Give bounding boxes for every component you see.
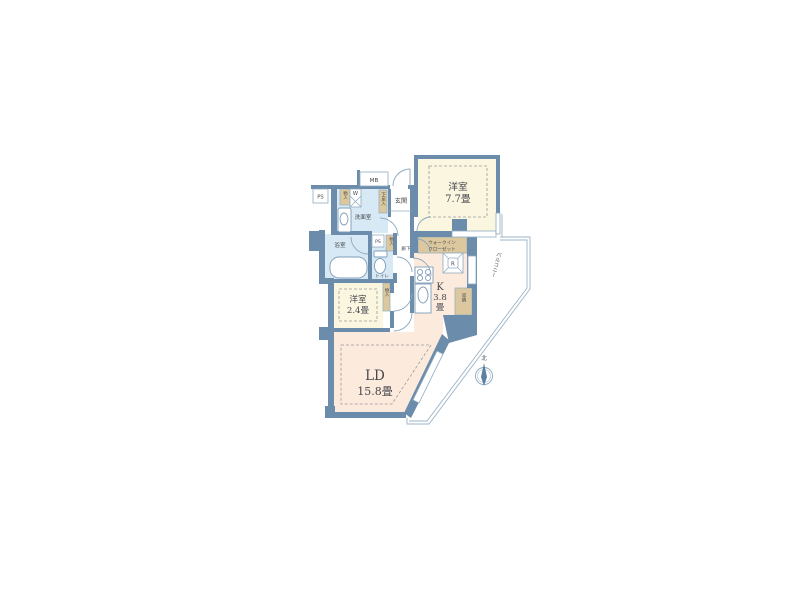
front-door-arc xyxy=(393,169,410,186)
label-balcony: バルコニー xyxy=(490,251,502,278)
label-hallway: 廊下 xyxy=(401,245,411,252)
wall-segment xyxy=(325,412,406,418)
window-kitchen-east xyxy=(468,256,476,284)
washbasin-bowl xyxy=(340,213,348,225)
label-refrigerator: R xyxy=(451,262,455,268)
wall-segment xyxy=(414,155,418,217)
wall-segment xyxy=(410,218,414,258)
label-kitchen-size: 3.8 xyxy=(433,293,447,303)
label-entrance: 玄関 xyxy=(395,197,407,205)
label-wic-line2: クローゼット xyxy=(428,246,456,253)
wall-segment xyxy=(319,327,329,340)
wall-segment xyxy=(357,170,360,186)
label-storage-small-1: 物入 xyxy=(343,190,348,200)
label-north: 北 xyxy=(481,354,487,362)
label-toilet: トイレ xyxy=(375,275,389,280)
label-bedroom24-name: 洋室 xyxy=(349,293,367,305)
label-kitchen-letter: K xyxy=(436,282,444,293)
label-storage-small-2: 物入 xyxy=(389,236,394,246)
label-bedroom77-size: 7.7畳 xyxy=(445,193,471,205)
wall-corner-block xyxy=(443,315,477,343)
label-kitchen-unit: 畳 xyxy=(436,302,445,313)
wall-segment xyxy=(388,189,391,217)
label-wic-line1: ウォークイン xyxy=(428,239,456,246)
wall-segment xyxy=(328,280,334,418)
wall-segment xyxy=(408,185,414,189)
label-shoe-cabinet: 下足入 xyxy=(381,192,386,206)
label-washer: W xyxy=(353,191,358,197)
label-living-name: LD xyxy=(365,368,385,384)
stove-burner xyxy=(417,275,422,280)
bathtub xyxy=(330,257,367,278)
window-bedroom77-east xyxy=(496,213,500,234)
compass-needle xyxy=(481,363,487,386)
toilet-tank xyxy=(374,251,387,257)
wall-segment xyxy=(309,231,321,251)
label-bedroom77-name: 洋室 xyxy=(448,180,468,193)
living-door-arc xyxy=(394,313,412,331)
toilet-door-arc xyxy=(397,257,412,272)
label-ps-1: PS xyxy=(317,195,323,201)
wall-segment xyxy=(393,233,397,255)
floorplan-drawing: MB PS PS W 物入 物入 物入 下足入 玄関 洗面室 浴室 トイレ 廊下… xyxy=(0,0,799,600)
label-washroom: 洗面室 xyxy=(355,213,372,221)
stove-burner xyxy=(425,275,430,280)
label-closet: 収納 xyxy=(461,292,466,304)
label-mb: MB xyxy=(370,178,379,184)
wall-segment xyxy=(328,328,390,332)
wall-segment xyxy=(331,185,337,233)
label-ps-2: PS xyxy=(375,239,381,245)
wall-segment xyxy=(410,189,414,218)
wall-segment xyxy=(414,155,500,159)
wall-segment xyxy=(368,233,372,283)
wall-segment xyxy=(331,231,372,235)
stove xyxy=(415,267,433,283)
label-bedroom24-size: 2.4畳 xyxy=(347,305,370,316)
floorplan-page: MB PS PS W 物入 物入 物入 下足入 玄関 洗面室 浴室 トイレ 廊下… xyxy=(0,0,799,600)
bedroom24-door-arc xyxy=(394,293,412,311)
label-storage-small-3: 物入 xyxy=(384,287,389,297)
wall-segment xyxy=(390,283,394,293)
wall-pillar xyxy=(452,219,467,232)
toilet-bowl xyxy=(375,259,386,274)
wall-segment xyxy=(390,311,394,328)
window-bedroom77-south xyxy=(452,231,496,237)
stove-burner xyxy=(417,269,422,274)
wall-segment xyxy=(325,279,397,283)
label-living-size: 15.8畳 xyxy=(357,385,393,398)
wall-segment xyxy=(496,159,500,214)
label-bathroom: 浴室 xyxy=(334,241,346,249)
wall-segment xyxy=(472,288,477,315)
kitchen-sink xyxy=(418,287,428,303)
